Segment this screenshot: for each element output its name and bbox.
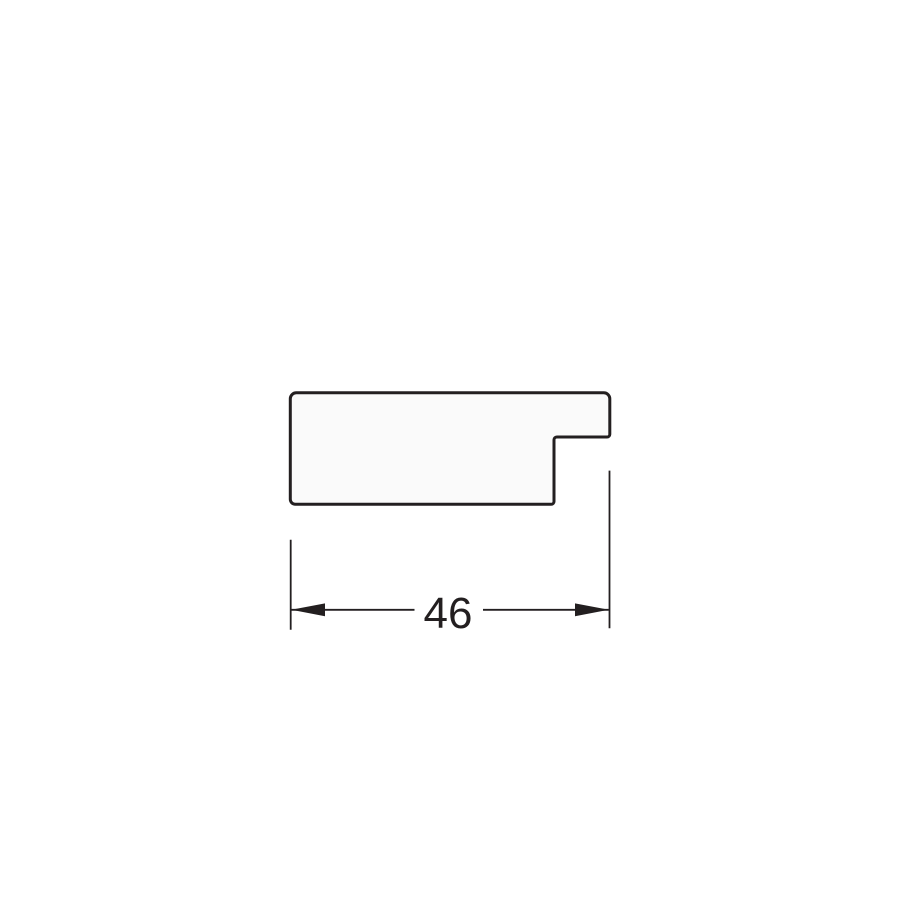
svg-text:46: 46 (424, 589, 473, 638)
